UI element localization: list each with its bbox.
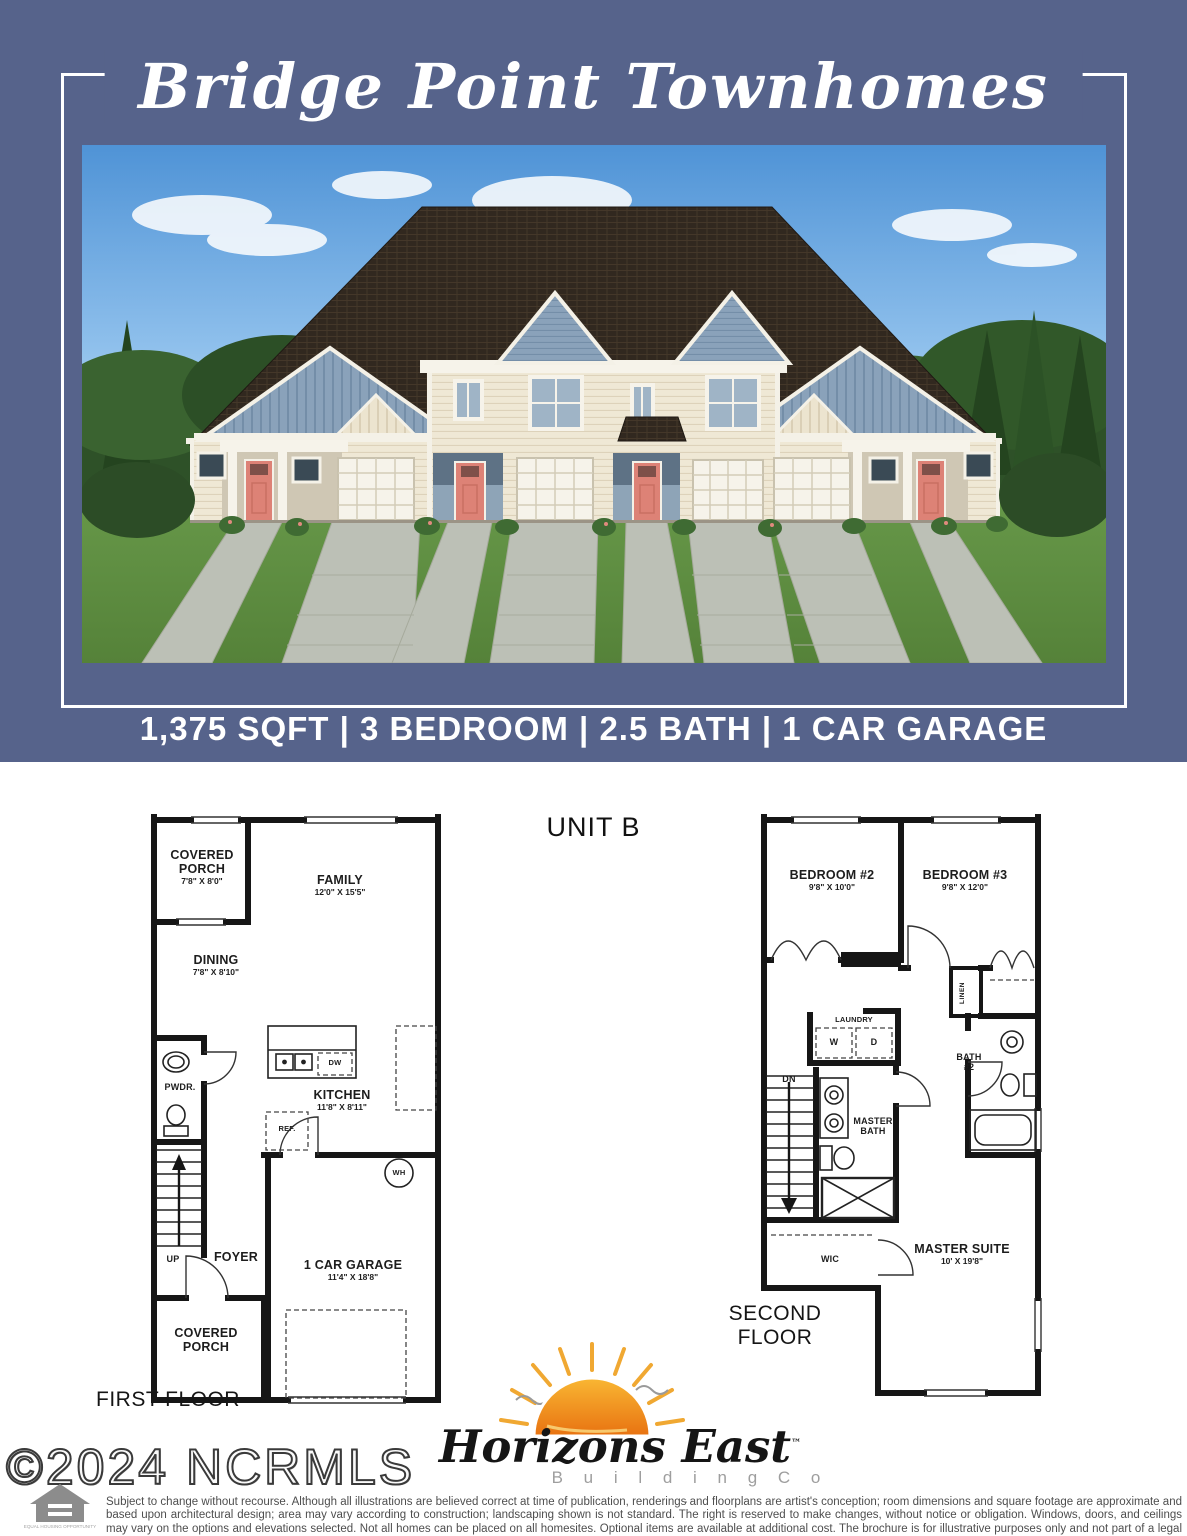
room-label-laundry: LAUNDRY <box>814 1016 894 1024</box>
label-dw: DW <box>315 1059 355 1067</box>
first-floor-plan: COVERED PORCH 7'8" X 8'0" FAMILY 12'0" X… <box>146 810 446 1410</box>
specs-bar: 1,375 SQFT | 3 BEDROOM | 2.5 BATH | 1 CA… <box>0 710 1187 748</box>
equal-housing-logo: EQUAL HOUSING OPPORTUNITY <box>22 1482 98 1536</box>
room-label-covered-porch-rear: COVERED PORCH <box>156 1326 256 1354</box>
label-linen: LINEN <box>959 972 973 1014</box>
room-label-covered-porch: COVERED PORCH 7'8" X 8'0" <box>152 848 252 887</box>
room-label-family: FAMILY 12'0" X 15'5" <box>290 873 390 898</box>
room-label-bath2: BATH #2 <box>952 1052 986 1072</box>
room-label-bedroom3: BEDROOM #3 9'8" X 12'0" <box>905 868 1025 893</box>
label-up: UP <box>158 1254 188 1264</box>
townhome-rendering-art <box>82 145 1106 663</box>
photo-frame <box>61 73 1127 708</box>
legal-disclaimer: Subject to change without recourse. Alth… <box>106 1496 1182 1536</box>
label-washer: W <box>820 1037 848 1047</box>
center-porch-roof <box>618 417 686 441</box>
label-ref: REF. <box>267 1125 307 1133</box>
header-panel: Bridge Point Townhomes 1,375 SQFT | 3 BE… <box>0 0 1187 762</box>
trademark: ™ <box>791 1438 801 1449</box>
label-dn: DN <box>774 1074 804 1084</box>
room-label-pwdr: PWDR. <box>150 1082 210 1092</box>
second-floor-plan: BEDROOM #2 9'8" X 10'0" BEDROOM #3 9'8" … <box>756 810 1046 1410</box>
room-label-kitchen: KITCHEN 11'8" X 8'11" <box>292 1088 392 1113</box>
room-label-bedroom2: BEDROOM #2 9'8" X 10'0" <box>772 868 892 893</box>
flyer: Bridge Point Townhomes 1,375 SQFT | 3 BE… <box>0 0 1187 1536</box>
equal-housing-icon: EQUAL HOUSING OPPORTUNITY <box>22 1482 98 1534</box>
svg-text:EQUAL HOUSING OPPORTUNITY: EQUAL HOUSING OPPORTUNITY <box>24 1524 97 1529</box>
room-label-dining: DINING 7'8" X 8'10" <box>166 953 266 978</box>
label-wh: WH <box>384 1169 414 1177</box>
room-label-foyer: FOYER <box>201 1250 271 1264</box>
room-label-garage: 1 CAR GARAGE 11'4" X 18'8" <box>293 1258 413 1283</box>
room-label-wic: WIC <box>806 1254 854 1264</box>
first-floor-caption: FIRST FLOOR <box>88 1388 248 1412</box>
builder-logo-name: Horizons East™ <box>420 1420 820 1473</box>
label-dryer: D <box>860 1037 888 1047</box>
room-label-master-suite: MASTER SUITE 10' X 19'8" <box>892 1242 1032 1267</box>
garage-doors <box>338 458 850 520</box>
room-label-master-bath: MASTER BATH <box>850 1116 896 1136</box>
page-title: Bridge Point Townhomes <box>104 50 1083 123</box>
second-floor-caption: SECOND FLOOR <box>690 1302 860 1350</box>
townhome-rendering <box>82 145 1106 663</box>
